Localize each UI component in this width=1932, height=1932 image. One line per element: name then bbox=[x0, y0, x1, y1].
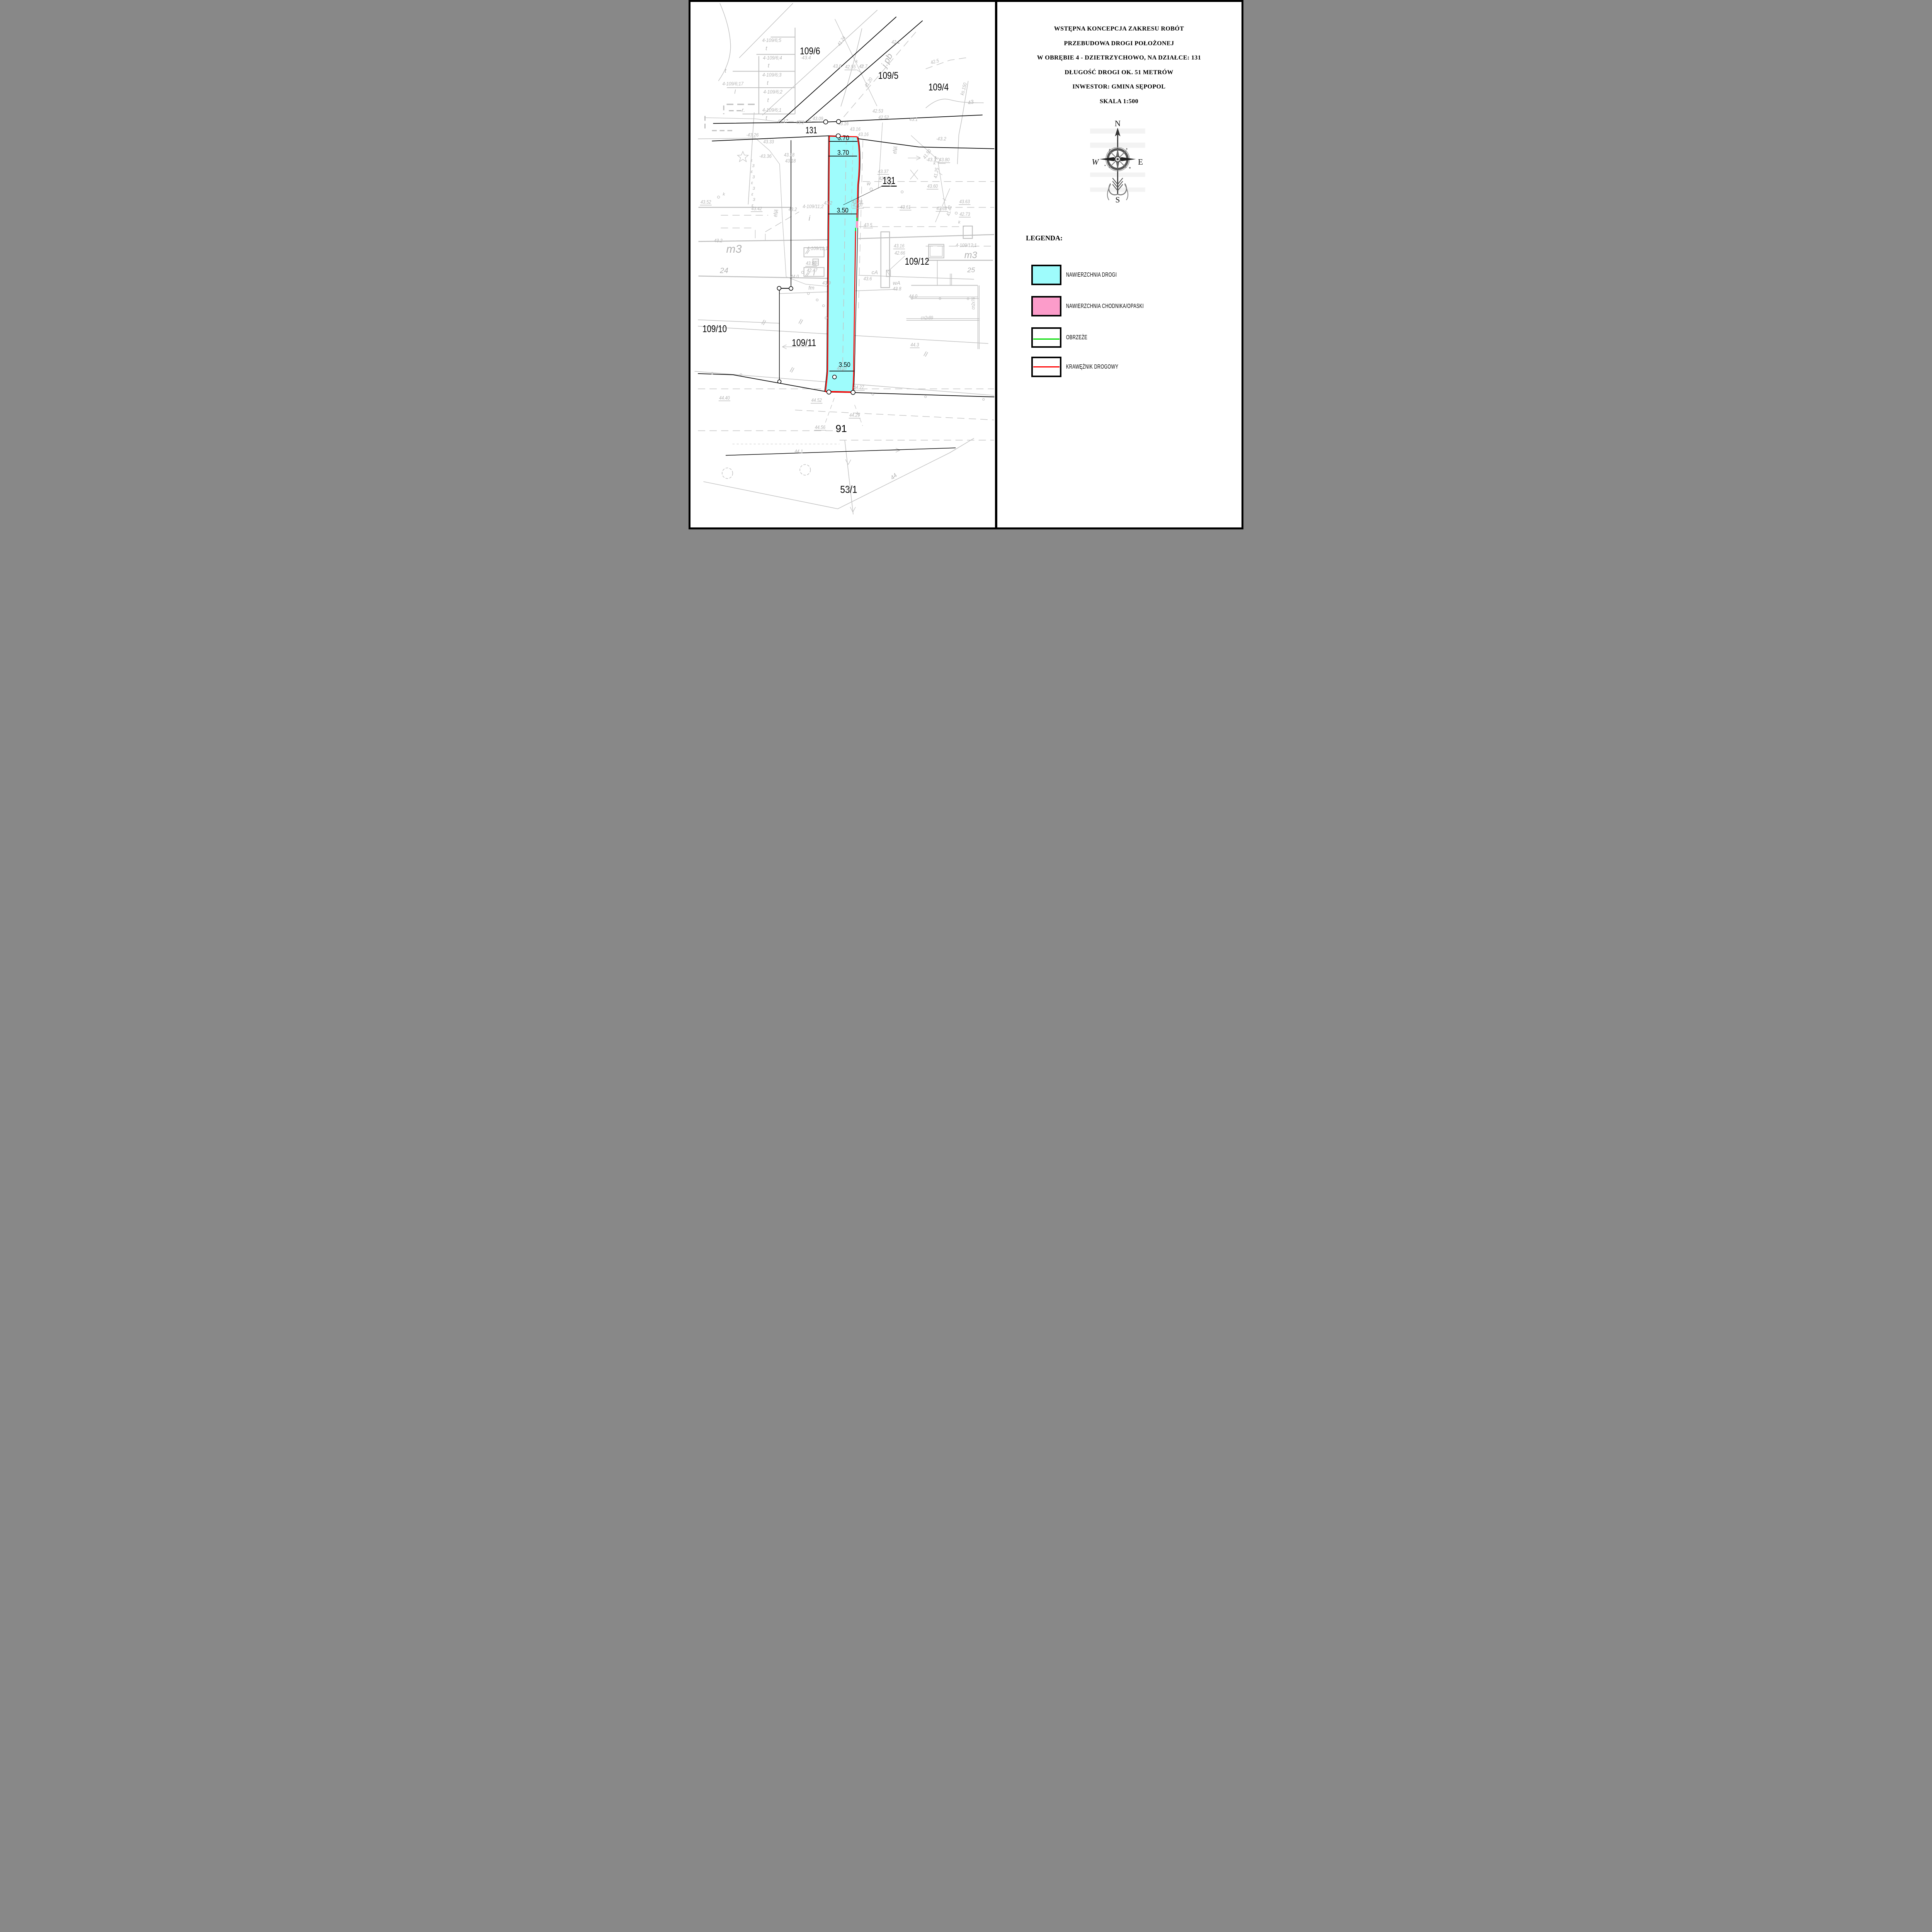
map-label-gray: 44.56 bbox=[815, 424, 826, 430]
dimension-label: 3.70 bbox=[837, 148, 849, 156]
map-label-gray: 4-109/6;1 bbox=[762, 107, 781, 113]
parcel-number: 91 bbox=[836, 423, 847, 434]
map-label-gray: 43.63 bbox=[936, 205, 947, 211]
parcel-number: 109/4 bbox=[929, 82, 949, 93]
map-label-gray: 43.2 bbox=[714, 238, 723, 243]
title-line: WSTĘPNA KONCEPCJA ZAKRESU ROBÓT bbox=[997, 22, 1241, 36]
map-label-gray: 25 bbox=[967, 266, 975, 274]
dimension-label: 3.50 bbox=[837, 206, 848, 214]
map-label-gray: 44.52 bbox=[811, 397, 822, 403]
map-label-gray: 43.33 bbox=[764, 139, 774, 145]
map-label-gray: 43.09 bbox=[813, 116, 823, 121]
title-line: SKALA 1:500 bbox=[997, 94, 1241, 109]
map-label-gray: 3 bbox=[753, 197, 755, 202]
map-label-gray: 4-109/6;3 bbox=[762, 72, 782, 78]
map-label-gray: cn2x76 bbox=[970, 297, 976, 310]
compass-rose: N S W E bbox=[1090, 118, 1145, 205]
map-label-gray: 4-109/6;4 bbox=[763, 55, 782, 61]
dimension-label: 3.50 bbox=[838, 361, 850, 368]
legend-label-sidewalk: NAWIERZCHNIA CHODNIKA/OPASKI bbox=[1066, 303, 1189, 310]
compass-s: S bbox=[1116, 195, 1120, 204]
parcel-number: 109/6 bbox=[800, 46, 820, 56]
map-label-gray: ·43.2 bbox=[936, 136, 947, 142]
parcel-number: 53/1 bbox=[840, 483, 857, 495]
map-label-gray: 43.6 bbox=[864, 276, 872, 282]
compass-e: E bbox=[1138, 157, 1143, 167]
map-label-gray: 43.37 bbox=[853, 202, 864, 208]
map-label-gray: 42.53 bbox=[872, 108, 883, 114]
map-label-gray: 43.2 bbox=[789, 206, 797, 212]
map-label-gray: 43.80 bbox=[939, 156, 950, 162]
map-label-gray: 3 bbox=[752, 175, 755, 180]
map-label-gray: 44.3 bbox=[910, 342, 919, 348]
map-label-gray: 44.27 bbox=[854, 384, 864, 390]
parcel-number: 131 bbox=[806, 126, 817, 136]
map-label-gray: m3 bbox=[726, 243, 742, 255]
sidewalk-patch bbox=[856, 221, 859, 228]
map-label-gray: 43.37 bbox=[878, 168, 889, 174]
legend-label-curb: KRAWĘŻNIK DROGOWY bbox=[1066, 364, 1189, 371]
map-label-gray: cA bbox=[872, 269, 878, 275]
parcel-number: 109/10 bbox=[702, 324, 727, 335]
title-line: W OBRĘBIE 4 - DZIETRZYCHOWO, NA DZIAŁCE:… bbox=[997, 51, 1241, 65]
map-label-gray: w bbox=[867, 180, 871, 187]
map-label-gray: 43.17 bbox=[777, 118, 788, 124]
parcel-number: 131 bbox=[883, 175, 895, 186]
map-label-gray: 43.2 bbox=[824, 200, 832, 206]
map-label-gray: 44.0 bbox=[909, 293, 917, 299]
map-label-gray: 4-109/11;2 bbox=[803, 203, 824, 209]
map-label-gray: 24 bbox=[719, 266, 728, 275]
title-line: INWESTOR: GMINA SĘPOPOL bbox=[997, 80, 1241, 94]
map-label-gray: ·43.26 bbox=[746, 132, 759, 138]
map-label-gray: 44.29 bbox=[849, 412, 860, 418]
map-label-gray: 43.1 bbox=[909, 116, 918, 122]
map-label-gray: 4-109/11;1 bbox=[807, 245, 828, 251]
edge-green-line bbox=[1033, 338, 1060, 340]
legend-swatch-sidewalk bbox=[1031, 296, 1061, 316]
map-label-gray: 4-109/12;1 bbox=[956, 242, 977, 248]
map-label-gray: 43.16 bbox=[850, 126, 861, 132]
map-label-gray: ·43.36 bbox=[759, 153, 772, 159]
map-label-gray: eNA bbox=[891, 146, 899, 154]
map-label-gray: cn2x89 bbox=[921, 315, 933, 321]
compass-w: W bbox=[1092, 157, 1100, 167]
map-label-gray: 4-109/6;2 bbox=[764, 89, 783, 95]
map-label-gray: 44.0 bbox=[791, 274, 799, 279]
map-label-gray: 3 bbox=[753, 186, 755, 191]
site-plan-map: 4-109/6;5t·43.44-109/6;4tt4-109/6;3t4-10… bbox=[692, 3, 995, 526]
map-label-gray: 4-109/6;5 bbox=[762, 37, 782, 43]
legend-swatch-edge bbox=[1031, 327, 1061, 348]
map-label-gray: 43.5 bbox=[864, 222, 872, 228]
map-label-gray: 43.63 bbox=[959, 199, 970, 204]
map-label-gray: 42.1 bbox=[891, 39, 900, 45]
legend-label-edge: OBRZEŻE bbox=[1066, 334, 1189, 341]
map-label-gray: 43.18 bbox=[785, 158, 796, 163]
parcel-number: 109/12 bbox=[905, 256, 929, 267]
parcel-number: 109/11 bbox=[792, 337, 816, 348]
map-label-gray: 42.47 bbox=[807, 267, 818, 273]
map-label-gray: 43.98 bbox=[806, 260, 817, 266]
title-panel: WSTĘPNA KONCEPCJA ZAKRESU ROBÓT PRZEBUDO… bbox=[997, 3, 1241, 526]
map-label-gray: 43.16 bbox=[858, 131, 869, 137]
map-label-gray: 42.55 bbox=[845, 64, 856, 70]
map-label-gray: 43.18 bbox=[784, 152, 795, 158]
map-label-gray: fm bbox=[808, 284, 815, 291]
parcel-number: 109/5 bbox=[878, 70, 899, 81]
map-label-gray: 43.60 bbox=[927, 183, 938, 189]
map-label-gray: 43.52 bbox=[701, 199, 711, 205]
legend-heading: LEGENDA: bbox=[1026, 234, 1063, 242]
legend-label-road: NAWIERZCHNIA DROGI bbox=[1066, 272, 1189, 279]
map-label-gray: 43.8 bbox=[893, 286, 901, 291]
drawing-sheet: 4-109/6;5t·43.44-109/6;4tt4-109/6;3t4-10… bbox=[689, 0, 1243, 529]
map-label-gray: 43.16 bbox=[894, 243, 905, 249]
map-label-gray: i bbox=[809, 214, 811, 223]
map-label-gray: 43.0 bbox=[833, 63, 842, 69]
legend-swatch-road bbox=[1031, 265, 1061, 285]
map-label-gray: r. bbox=[742, 107, 745, 114]
map-label-gray: 44.1 bbox=[794, 448, 803, 454]
map-label-gray: 42.66 bbox=[895, 250, 905, 256]
map-label-gray: wA bbox=[893, 280, 900, 286]
map-label-gray: 3 bbox=[752, 163, 755, 168]
map-label-gray: 43.61 bbox=[900, 204, 911, 210]
map-label-gray: 43.2 bbox=[796, 119, 804, 125]
map-label-gray: 42.7 bbox=[859, 63, 867, 69]
compass-n: N bbox=[1115, 119, 1121, 128]
curb-red-line bbox=[1033, 366, 1060, 367]
map-label-gray: 4-109/6;17 bbox=[723, 81, 744, 87]
title-block: WSTĘPNA KONCEPCJA ZAKRESU ROBÓT PRZEBUDO… bbox=[997, 22, 1241, 109]
legend-swatch-curb bbox=[1031, 357, 1061, 377]
map-label-gray: 42.73 bbox=[959, 211, 970, 217]
title-line: DŁUGOŚĆ DROGI OK. 51 METRÓW bbox=[997, 65, 1241, 80]
map-label-gray: 43.9 bbox=[822, 280, 831, 286]
map-label-gray: 42.52 bbox=[878, 114, 889, 120]
title-line: PRZEBUDOWA DROGI POŁOŻONEJ bbox=[997, 36, 1241, 51]
map-label-gray: 44.40 bbox=[719, 395, 730, 401]
map-label-gray: m3 bbox=[964, 250, 977, 260]
